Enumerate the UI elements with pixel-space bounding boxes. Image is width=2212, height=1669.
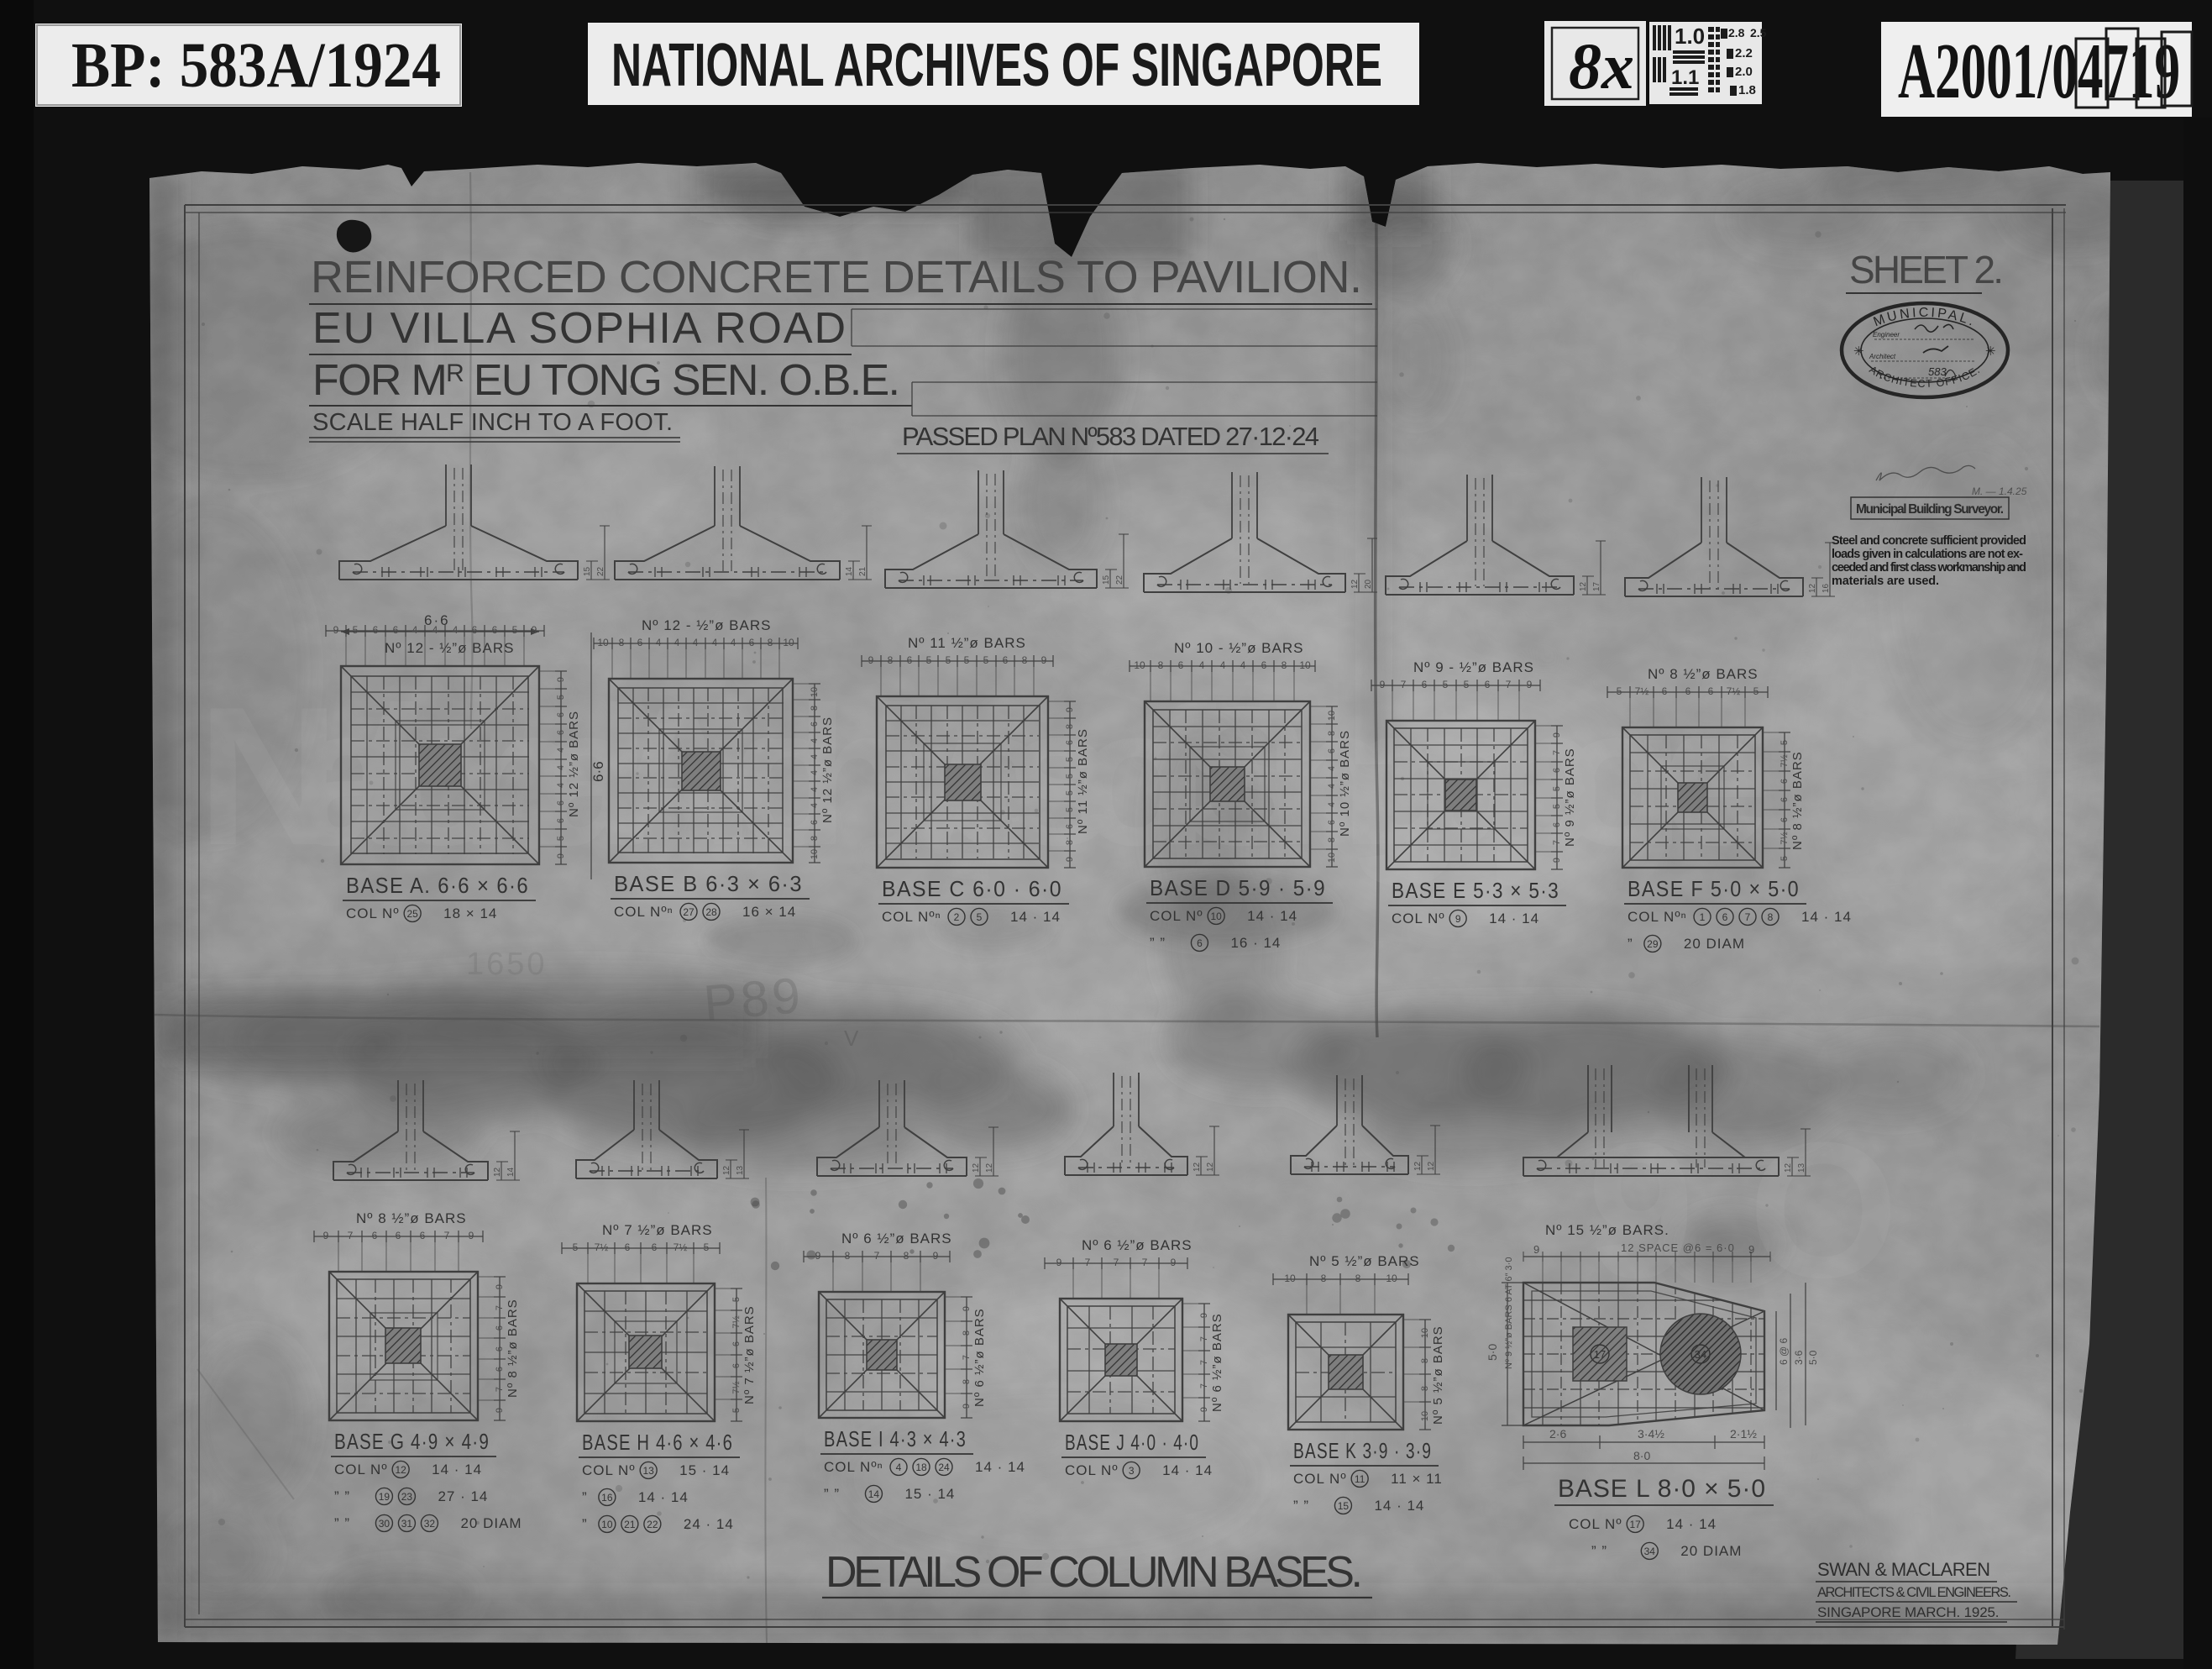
svg-text:6: 6 bbox=[495, 1325, 505, 1330]
svg-text:5: 5 bbox=[704, 1241, 710, 1253]
svg-text:5: 5 bbox=[1464, 679, 1470, 690]
svg-text:Nº 6 ½”ø BARS: Nº 6 ½”ø BARS bbox=[1082, 1237, 1192, 1253]
svg-text:Nº 5 ½”ø BARS: Nº 5 ½”ø BARS bbox=[1431, 1325, 1445, 1425]
svg-text:Nº 5 ½”ø BARS: Nº 5 ½”ø BARS bbox=[1309, 1253, 1420, 1269]
svg-text:✳: ✳ bbox=[1985, 344, 1996, 359]
svg-text:Nº 8 ½”ø BARS: Nº 8 ½”ø BARS bbox=[356, 1210, 467, 1226]
svg-text:7: 7 bbox=[874, 1250, 880, 1262]
svg-text:10: 10 bbox=[1299, 659, 1311, 671]
svg-text:” ”: ” ” bbox=[334, 1488, 350, 1504]
svg-text:BASE K 3·9 · 3·9: BASE K 3·9 · 3·9 bbox=[1293, 1438, 1432, 1463]
svg-text:1650: 1650 bbox=[466, 947, 548, 982]
svg-text:8x: 8x bbox=[1569, 29, 1634, 102]
svg-text:” ”: ” ” bbox=[824, 1486, 840, 1502]
svg-text:5: 5 bbox=[1552, 804, 1562, 809]
svg-text:8: 8 bbox=[1420, 1358, 1430, 1363]
svg-text:6: 6 bbox=[1065, 824, 1075, 829]
svg-text:5: 5 bbox=[1065, 807, 1075, 812]
svg-text:6: 6 bbox=[731, 1341, 742, 1346]
svg-text:8: 8 bbox=[888, 654, 894, 666]
svg-text:20: 20 bbox=[1364, 579, 1373, 589]
svg-text:BP: 583A/1924: BP: 583A/1924 bbox=[71, 30, 441, 101]
svg-text:7½: 7½ bbox=[595, 1241, 609, 1253]
svg-text:11 × 11: 11 × 11 bbox=[1391, 1471, 1443, 1487]
svg-text:4: 4 bbox=[556, 765, 566, 770]
svg-text:7: 7 bbox=[1142, 1257, 1148, 1268]
svg-text:V: V bbox=[844, 1026, 859, 1051]
svg-text:12: 12 bbox=[722, 1165, 731, 1175]
svg-text:583: 583 bbox=[1928, 365, 1947, 378]
svg-text:7: 7 bbox=[1199, 1360, 1209, 1365]
svg-text:12: 12 bbox=[1579, 581, 1588, 591]
svg-text:4: 4 bbox=[693, 637, 699, 648]
svg-text:7: 7 bbox=[1552, 840, 1562, 845]
svg-text:Nº 10 ½”ø BARS: Nº 10 ½”ø BARS bbox=[1338, 730, 1352, 837]
svg-text:Nº 8 ½”ø BARS: Nº 8 ½”ø BARS bbox=[1790, 751, 1805, 850]
svg-text:12: 12 bbox=[493, 1167, 502, 1177]
svg-text:8: 8 bbox=[1158, 659, 1164, 671]
svg-text:9: 9 bbox=[1056, 1257, 1062, 1268]
svg-text:Nº 8 ½”ø BARS: Nº 8 ½”ø BARS bbox=[1648, 666, 1759, 682]
svg-text:SINGAPORE MARCH. 1925.: SINGAPORE MARCH. 1925. bbox=[1817, 1604, 2000, 1620]
svg-text:9: 9 bbox=[962, 1306, 972, 1311]
svg-text:BASE C 6·0 · 6·0: BASE C 6·0 · 6·0 bbox=[882, 876, 1062, 901]
svg-text:4: 4 bbox=[810, 787, 820, 792]
svg-text:REINFORCED CONCRETE DETAILS: REINFORCED CONCRETE DETAILS TO PAVILION. bbox=[311, 252, 1367, 302]
svg-text:10: 10 bbox=[1327, 711, 1337, 721]
svg-text:Engineer: Engineer bbox=[1873, 331, 1900, 339]
svg-text:7: 7 bbox=[1552, 750, 1562, 755]
svg-text:BASE J 4·0 · 4·0: BASE J 4·0 · 4·0 bbox=[1065, 1430, 1199, 1455]
svg-text:6: 6 bbox=[1003, 654, 1009, 666]
svg-text:8: 8 bbox=[619, 637, 625, 648]
svg-text:14 · 14: 14 · 14 bbox=[1374, 1498, 1424, 1514]
svg-text:9: 9 bbox=[333, 624, 339, 636]
svg-text:7: 7 bbox=[1199, 1383, 1209, 1388]
svg-text:4: 4 bbox=[1327, 766, 1337, 771]
svg-text:14 · 14: 14 · 14 bbox=[1489, 911, 1539, 926]
svg-text:5: 5 bbox=[512, 624, 518, 636]
svg-text:”: ” bbox=[582, 1516, 588, 1532]
svg-text:8: 8 bbox=[845, 1250, 851, 1262]
svg-text:Nº 6 ½”ø BARS: Nº 6 ½”ø BARS bbox=[841, 1231, 952, 1247]
svg-text:7: 7 bbox=[495, 1387, 505, 1392]
svg-text:31: 31 bbox=[401, 1518, 413, 1530]
svg-text:9: 9 bbox=[1552, 858, 1562, 863]
svg-text:17: 17 bbox=[1629, 1519, 1641, 1530]
svg-text:7: 7 bbox=[962, 1355, 972, 1360]
svg-text:5: 5 bbox=[1780, 856, 1790, 861]
svg-text:4: 4 bbox=[1220, 659, 1226, 671]
svg-text:Nº 12 ½”ø BARS: Nº 12 ½”ø BARS bbox=[820, 716, 835, 823]
svg-text:34: 34 bbox=[1644, 1546, 1656, 1557]
svg-text:14 · 14: 14 · 14 bbox=[1162, 1462, 1213, 1478]
svg-text:10: 10 bbox=[601, 1519, 613, 1530]
svg-text:Nº 9 - ½”ø BARS: Nº 9 - ½”ø BARS bbox=[1413, 659, 1534, 675]
svg-text:6: 6 bbox=[556, 800, 566, 806]
svg-text:3·4½: 3·4½ bbox=[1638, 1427, 1664, 1441]
svg-text:COL Nº: COL Nº bbox=[346, 905, 400, 921]
svg-text:NATIONAL ARCHIVES OF SINGAPORE: NATIONAL ARCHIVES OF SINGAPORE bbox=[611, 32, 1382, 99]
svg-text:7: 7 bbox=[1745, 911, 1751, 923]
svg-text:BASE D 5·9 · 5·9: BASE D 5·9 · 5·9 bbox=[1150, 875, 1326, 900]
svg-text:7: 7 bbox=[1199, 1336, 1209, 1341]
svg-text:5: 5 bbox=[1753, 685, 1759, 697]
svg-text:8: 8 bbox=[1355, 1273, 1361, 1284]
svg-text:9: 9 bbox=[1552, 732, 1562, 737]
svg-text:6: 6 bbox=[1552, 768, 1562, 773]
svg-text:8·0: 8·0 bbox=[1633, 1449, 1650, 1462]
svg-text:22: 22 bbox=[596, 566, 605, 576]
svg-text:1: 1 bbox=[1700, 911, 1706, 923]
svg-text:5: 5 bbox=[556, 695, 566, 700]
svg-text:8: 8 bbox=[1327, 837, 1337, 842]
svg-text:2: 2 bbox=[954, 911, 960, 923]
svg-text:BASE F 5·0 × 5·0: BASE F 5·0 × 5·0 bbox=[1628, 876, 1800, 901]
svg-text:6: 6 bbox=[625, 1241, 631, 1253]
svg-text:9: 9 bbox=[1065, 857, 1075, 862]
svg-text:COL Nº: COL Nº bbox=[1065, 1462, 1119, 1478]
svg-text:” ”: ” ” bbox=[1293, 1498, 1309, 1514]
svg-text:BASE A. 6·6 × 6·6: BASE A. 6·6 × 6·6 bbox=[346, 873, 529, 898]
svg-text:Nº 12 - ½”ø BARS: Nº 12 - ½”ø BARS bbox=[385, 640, 514, 656]
svg-text:20 DIAM: 20 DIAM bbox=[460, 1515, 522, 1531]
svg-text:30: 30 bbox=[379, 1518, 391, 1530]
svg-text:32: 32 bbox=[424, 1518, 436, 1530]
svg-text:15: 15 bbox=[583, 566, 592, 576]
svg-text:7½: 7½ bbox=[1635, 685, 1649, 697]
svg-text:5: 5 bbox=[977, 911, 983, 923]
svg-text:20 DIAM: 20 DIAM bbox=[1684, 936, 1745, 952]
svg-text:4: 4 bbox=[556, 783, 566, 788]
svg-text:materials are used.: materials are used. bbox=[1832, 575, 1939, 588]
svg-text:6: 6 bbox=[907, 654, 913, 666]
svg-text:6·6: 6·6 bbox=[590, 761, 606, 782]
svg-text:5: 5 bbox=[983, 654, 989, 666]
svg-text:6: 6 bbox=[372, 1230, 378, 1241]
svg-text:” ”: ” ” bbox=[1591, 1543, 1607, 1559]
svg-text:15 · 14: 15 · 14 bbox=[904, 1486, 955, 1502]
svg-text:BASE E 5·3 × 5·3: BASE E 5·3 × 5·3 bbox=[1392, 878, 1559, 903]
svg-text:18 × 14: 18 × 14 bbox=[443, 905, 497, 921]
svg-text:14 · 14: 14 · 14 bbox=[1666, 1516, 1717, 1532]
svg-text:13: 13 bbox=[1797, 1163, 1806, 1173]
svg-text:6 @ 6: 6 @ 6 bbox=[1778, 1337, 1790, 1365]
svg-text:” ”: ” ” bbox=[1150, 935, 1166, 951]
svg-text:8: 8 bbox=[1327, 731, 1337, 736]
svg-text:6: 6 bbox=[1722, 911, 1728, 923]
svg-text:8: 8 bbox=[810, 836, 820, 841]
svg-text:7½: 7½ bbox=[1780, 832, 1790, 844]
svg-text:PASSED PLAN Nº583 DATED 27·: PASSED PLAN Nº583 DATED 27·12·24 bbox=[902, 422, 1322, 451]
svg-text:Nº 12 ½”ø BARS: Nº 12 ½”ø BARS bbox=[567, 711, 581, 817]
svg-text:12: 12 bbox=[1206, 1162, 1215, 1172]
svg-text:14 · 14: 14 · 14 bbox=[432, 1462, 482, 1477]
svg-text:10: 10 bbox=[1420, 1411, 1430, 1421]
svg-text:16 × 14: 16 × 14 bbox=[742, 904, 796, 920]
svg-text:6: 6 bbox=[810, 820, 820, 825]
svg-text:13: 13 bbox=[642, 1465, 654, 1477]
svg-text:9: 9 bbox=[1199, 1313, 1209, 1318]
svg-text:12: 12 bbox=[1413, 1161, 1423, 1171]
svg-text:5: 5 bbox=[1065, 757, 1075, 762]
svg-text:8: 8 bbox=[1065, 724, 1075, 729]
svg-text:BASE L 8·0 × 5·0: BASE L 8·0 × 5·0 bbox=[1558, 1475, 1768, 1503]
svg-text:7: 7 bbox=[348, 1230, 354, 1241]
svg-text:10: 10 bbox=[1284, 1273, 1296, 1284]
svg-text:6: 6 bbox=[472, 624, 478, 636]
svg-text:28: 28 bbox=[705, 906, 717, 918]
svg-text:SWAN & MACLAREN: SWAN & MACLAREN bbox=[1817, 1559, 1992, 1580]
svg-text:14 · 14: 14 · 14 bbox=[1010, 909, 1061, 925]
svg-text:9: 9 bbox=[469, 1230, 474, 1241]
svg-text:loads given in calculations ar: loads given in calculations are not ex- bbox=[1832, 548, 2023, 561]
svg-text:8: 8 bbox=[904, 1250, 909, 1262]
svg-text:6: 6 bbox=[492, 624, 498, 636]
svg-text:ceeded and first class workman: ceeded and first class workmanship and bbox=[1832, 561, 2026, 575]
svg-text:2.5: 2.5 bbox=[1750, 26, 1767, 39]
svg-text:4: 4 bbox=[1327, 802, 1337, 807]
svg-text:6: 6 bbox=[810, 722, 820, 727]
svg-text:10: 10 bbox=[783, 637, 794, 648]
svg-text:5: 5 bbox=[1780, 740, 1790, 745]
svg-text:BASE I 4·3 × 4·3: BASE I 4·3 × 4·3 bbox=[824, 1426, 967, 1451]
svg-text:8: 8 bbox=[768, 637, 773, 648]
svg-text:10: 10 bbox=[597, 637, 609, 648]
svg-text:14 · 14: 14 · 14 bbox=[1247, 908, 1297, 924]
svg-text:9: 9 bbox=[556, 853, 566, 858]
svg-text:4: 4 bbox=[810, 803, 820, 808]
svg-text:9: 9 bbox=[868, 654, 874, 666]
svg-text:6: 6 bbox=[1178, 659, 1184, 671]
svg-text:5: 5 bbox=[1065, 774, 1075, 779]
svg-text:12: 12 bbox=[972, 1163, 981, 1173]
svg-text:BASE G 4·9 × 4·9: BASE G 4·9 × 4·9 bbox=[334, 1429, 490, 1454]
svg-text:12: 12 bbox=[1808, 583, 1817, 593]
svg-text:6: 6 bbox=[731, 1363, 742, 1368]
svg-text:8: 8 bbox=[1321, 1273, 1327, 1284]
svg-text:7½: 7½ bbox=[1727, 685, 1741, 697]
svg-text:25: 25 bbox=[406, 908, 418, 920]
svg-text:9: 9 bbox=[495, 1408, 505, 1413]
svg-text:COL Nº: COL Nº bbox=[1569, 1516, 1622, 1532]
svg-text:8: 8 bbox=[1768, 911, 1774, 923]
svg-text:6: 6 bbox=[1780, 817, 1790, 822]
svg-text:BASE B 6·3 × 6·3: BASE B 6·3 × 6·3 bbox=[614, 871, 803, 896]
svg-text:6: 6 bbox=[1485, 679, 1491, 690]
svg-text:”: ” bbox=[1628, 936, 1633, 952]
svg-text:6: 6 bbox=[749, 637, 755, 648]
svg-text:16: 16 bbox=[601, 1492, 613, 1504]
svg-text:23: 23 bbox=[401, 1491, 413, 1503]
svg-text:8: 8 bbox=[962, 1330, 972, 1336]
svg-text:7½: 7½ bbox=[731, 1381, 742, 1393]
svg-text:4: 4 bbox=[1240, 659, 1246, 671]
svg-text:4: 4 bbox=[896, 1462, 902, 1473]
svg-text:4: 4 bbox=[453, 624, 459, 636]
svg-text:5: 5 bbox=[731, 1297, 742, 1302]
svg-text:4: 4 bbox=[1327, 784, 1337, 789]
svg-text:5: 5 bbox=[964, 654, 970, 666]
svg-text:27 · 14: 27 · 14 bbox=[438, 1488, 488, 1504]
svg-text:4: 4 bbox=[656, 637, 662, 648]
svg-text:5: 5 bbox=[926, 654, 932, 666]
svg-text:BASE H 4·6 × 4·6: BASE H 4·6 × 4·6 bbox=[582, 1430, 733, 1455]
svg-text:Nº 6 ½”ø BARS: Nº 6 ½”ø BARS bbox=[972, 1308, 987, 1407]
svg-text:10: 10 bbox=[1386, 1273, 1397, 1284]
svg-text:9: 9 bbox=[1527, 679, 1533, 690]
svg-text:17: 17 bbox=[1592, 581, 1601, 591]
svg-text:Nº 15 ½”ø BARS.: Nº 15 ½”ø BARS. bbox=[1545, 1222, 1669, 1238]
svg-text:7½: 7½ bbox=[731, 1315, 742, 1328]
svg-text:6: 6 bbox=[1422, 679, 1428, 690]
svg-text:Municipal Building Surveyor.: Municipal Building Surveyor. bbox=[1856, 502, 2004, 517]
svg-text:10: 10 bbox=[1134, 659, 1145, 671]
svg-text:Nº 10 - ½”ø BARS: Nº 10 - ½”ø BARS bbox=[1174, 640, 1303, 656]
svg-text:15 · 14: 15 · 14 bbox=[679, 1462, 730, 1478]
svg-text:12: 12 bbox=[1350, 579, 1360, 589]
svg-text:13: 13 bbox=[736, 1165, 745, 1175]
svg-text:9: 9 bbox=[933, 1250, 939, 1262]
svg-text:9: 9 bbox=[1199, 1407, 1209, 1412]
svg-text:9: 9 bbox=[323, 1230, 329, 1241]
svg-text:7½: 7½ bbox=[674, 1241, 688, 1253]
svg-text:7: 7 bbox=[1114, 1257, 1119, 1268]
svg-text:5: 5 bbox=[1443, 679, 1449, 690]
svg-text:2.0: 2.0 bbox=[1735, 65, 1753, 79]
svg-text:4: 4 bbox=[1199, 659, 1205, 671]
svg-text:5: 5 bbox=[731, 1408, 742, 1413]
svg-text:22: 22 bbox=[647, 1519, 658, 1530]
svg-text:29: 29 bbox=[1647, 938, 1659, 950]
svg-text:4: 4 bbox=[556, 748, 566, 753]
svg-text:10: 10 bbox=[810, 687, 820, 697]
svg-text:2.8: 2.8 bbox=[1728, 26, 1745, 39]
svg-text:7: 7 bbox=[1401, 679, 1407, 690]
svg-text:4: 4 bbox=[810, 770, 820, 775]
svg-text:5: 5 bbox=[1552, 786, 1562, 791]
svg-text:COL Nº: COL Nº bbox=[1293, 1471, 1347, 1487]
svg-text:9: 9 bbox=[1065, 707, 1075, 712]
svg-text:6: 6 bbox=[652, 1241, 658, 1253]
svg-text:4: 4 bbox=[432, 624, 438, 636]
svg-text:12: 12 bbox=[1427, 1161, 1436, 1171]
svg-text:6: 6 bbox=[1065, 740, 1075, 745]
svg-text:6: 6 bbox=[1327, 820, 1337, 825]
svg-text:1.0: 1.0 bbox=[1675, 24, 1705, 49]
svg-text:20 DIAM: 20 DIAM bbox=[1680, 1543, 1742, 1559]
svg-text:5: 5 bbox=[946, 654, 951, 666]
svg-text:2·6: 2·6 bbox=[1549, 1427, 1566, 1441]
svg-text:6: 6 bbox=[1552, 822, 1562, 827]
svg-text:6: 6 bbox=[556, 730, 566, 735]
svg-text:Nº 11 ½”ø BARS: Nº 11 ½”ø BARS bbox=[908, 635, 1026, 651]
svg-text:3: 3 bbox=[1129, 1465, 1135, 1477]
svg-text:5: 5 bbox=[353, 624, 359, 636]
svg-text:6: 6 bbox=[393, 624, 399, 636]
svg-text:5: 5 bbox=[1065, 790, 1075, 795]
svg-text:5·0: 5·0 bbox=[1807, 1350, 1819, 1365]
svg-text:1.8: 1.8 bbox=[1738, 83, 1756, 97]
svg-text:6: 6 bbox=[1780, 797, 1790, 802]
svg-text:6: 6 bbox=[495, 1367, 505, 1372]
svg-text:12: 12 bbox=[985, 1163, 994, 1173]
svg-text:Nº 7 ½”ø BARS: Nº 7 ½”ø BARS bbox=[742, 1305, 757, 1404]
svg-text:Steel and concrete sufficient: Steel and concrete sufficient provided bbox=[1832, 534, 2026, 548]
svg-text:1.1: 1.1 bbox=[1671, 66, 1699, 89]
svg-text:Nº 6 ½”ø BARS: Nº 6 ½”ø BARS bbox=[1210, 1313, 1224, 1412]
svg-text:6: 6 bbox=[1327, 748, 1337, 753]
svg-text:EU VILLA SOPHIA ROAD: EU VILLA SOPHIA ROAD bbox=[312, 304, 850, 353]
svg-text:5: 5 bbox=[1617, 685, 1622, 697]
svg-text:COL Nº: COL Nº bbox=[1150, 908, 1203, 924]
svg-text:9: 9 bbox=[532, 624, 537, 636]
svg-text:9: 9 bbox=[1171, 1257, 1177, 1268]
svg-text:2·1½: 2·1½ bbox=[1730, 1427, 1757, 1441]
svg-text:6: 6 bbox=[1708, 685, 1714, 697]
svg-text:9 O: 9 O bbox=[1587, 1102, 1899, 1318]
svg-text:8: 8 bbox=[1022, 654, 1028, 666]
svg-text:14 · 14: 14 · 14 bbox=[975, 1459, 1025, 1475]
svg-text:COL Nºⁿ: COL Nºⁿ bbox=[824, 1459, 883, 1475]
svg-text:7: 7 bbox=[444, 1230, 450, 1241]
svg-text:2.2: 2.2 bbox=[1735, 46, 1753, 60]
svg-text:8: 8 bbox=[1065, 840, 1075, 845]
svg-text:14: 14 bbox=[506, 1167, 516, 1177]
svg-text:Nº 7 ½”ø BARS: Nº 7 ½”ø BARS bbox=[602, 1222, 713, 1238]
svg-text:9: 9 bbox=[1041, 654, 1047, 666]
svg-text:14 · 14: 14 · 14 bbox=[638, 1489, 689, 1505]
svg-text:6: 6 bbox=[556, 818, 566, 823]
svg-text:9: 9 bbox=[556, 677, 566, 682]
svg-text:8: 8 bbox=[1282, 659, 1287, 671]
svg-text:5: 5 bbox=[573, 1241, 579, 1253]
svg-text:14: 14 bbox=[845, 566, 854, 576]
svg-text:Nº 9 ½”ø BARS: Nº 9 ½”ø BARS bbox=[1563, 748, 1577, 847]
svg-text:SCALE HALF INCH TO A FOOT: SCALE HALF INCH TO A FOOT. bbox=[312, 409, 675, 436]
svg-text:16: 16 bbox=[1821, 583, 1831, 593]
svg-text:SHEET 2.: SHEET 2. bbox=[1849, 248, 2010, 291]
svg-text:11: 11 bbox=[1355, 1473, 1365, 1485]
svg-text:Architect: Architect bbox=[1869, 353, 1896, 360]
svg-text:COL Nº: COL Nº bbox=[334, 1462, 388, 1477]
svg-text:6: 6 bbox=[1662, 685, 1668, 697]
svg-text:10: 10 bbox=[810, 849, 820, 859]
svg-text:6: 6 bbox=[1780, 779, 1790, 784]
svg-text:6: 6 bbox=[556, 712, 566, 717]
svg-text:9: 9 bbox=[1455, 913, 1461, 925]
svg-text:24 · 14: 24 · 14 bbox=[684, 1516, 734, 1532]
svg-text:FOR MR EU TONG SEN. O.B.E.: FOR MR EU TONG SEN. O.B.E. bbox=[312, 356, 904, 405]
svg-text:9: 9 bbox=[1380, 679, 1386, 690]
svg-text:12: 12 bbox=[395, 1464, 406, 1476]
svg-text:COL Nº: COL Nº bbox=[582, 1462, 636, 1478]
svg-text:Nº 9 ½”ø BARS 6 AT 6″ 3·0: Nº 9 ½”ø BARS 6 AT 6″ 3·0 bbox=[1504, 1257, 1514, 1369]
svg-text:COL Nº: COL Nº bbox=[1392, 911, 1445, 926]
svg-text:15: 15 bbox=[1338, 1500, 1350, 1512]
svg-text:16 · 14: 16 · 14 bbox=[1230, 935, 1281, 951]
svg-text:7½: 7½ bbox=[1780, 754, 1790, 767]
svg-text:8: 8 bbox=[1420, 1386, 1430, 1391]
svg-text:” ”: ” ” bbox=[334, 1515, 350, 1531]
svg-text:9: 9 bbox=[815, 1250, 821, 1262]
svg-text:12: 12 bbox=[1192, 1162, 1202, 1172]
svg-text:8: 8 bbox=[962, 1379, 972, 1384]
svg-text:9: 9 bbox=[1533, 1243, 1539, 1256]
svg-text:7: 7 bbox=[495, 1305, 505, 1310]
svg-text:Nº 8 ½”ø BARS: Nº 8 ½”ø BARS bbox=[506, 1299, 520, 1398]
svg-text:19: 19 bbox=[379, 1491, 391, 1503]
